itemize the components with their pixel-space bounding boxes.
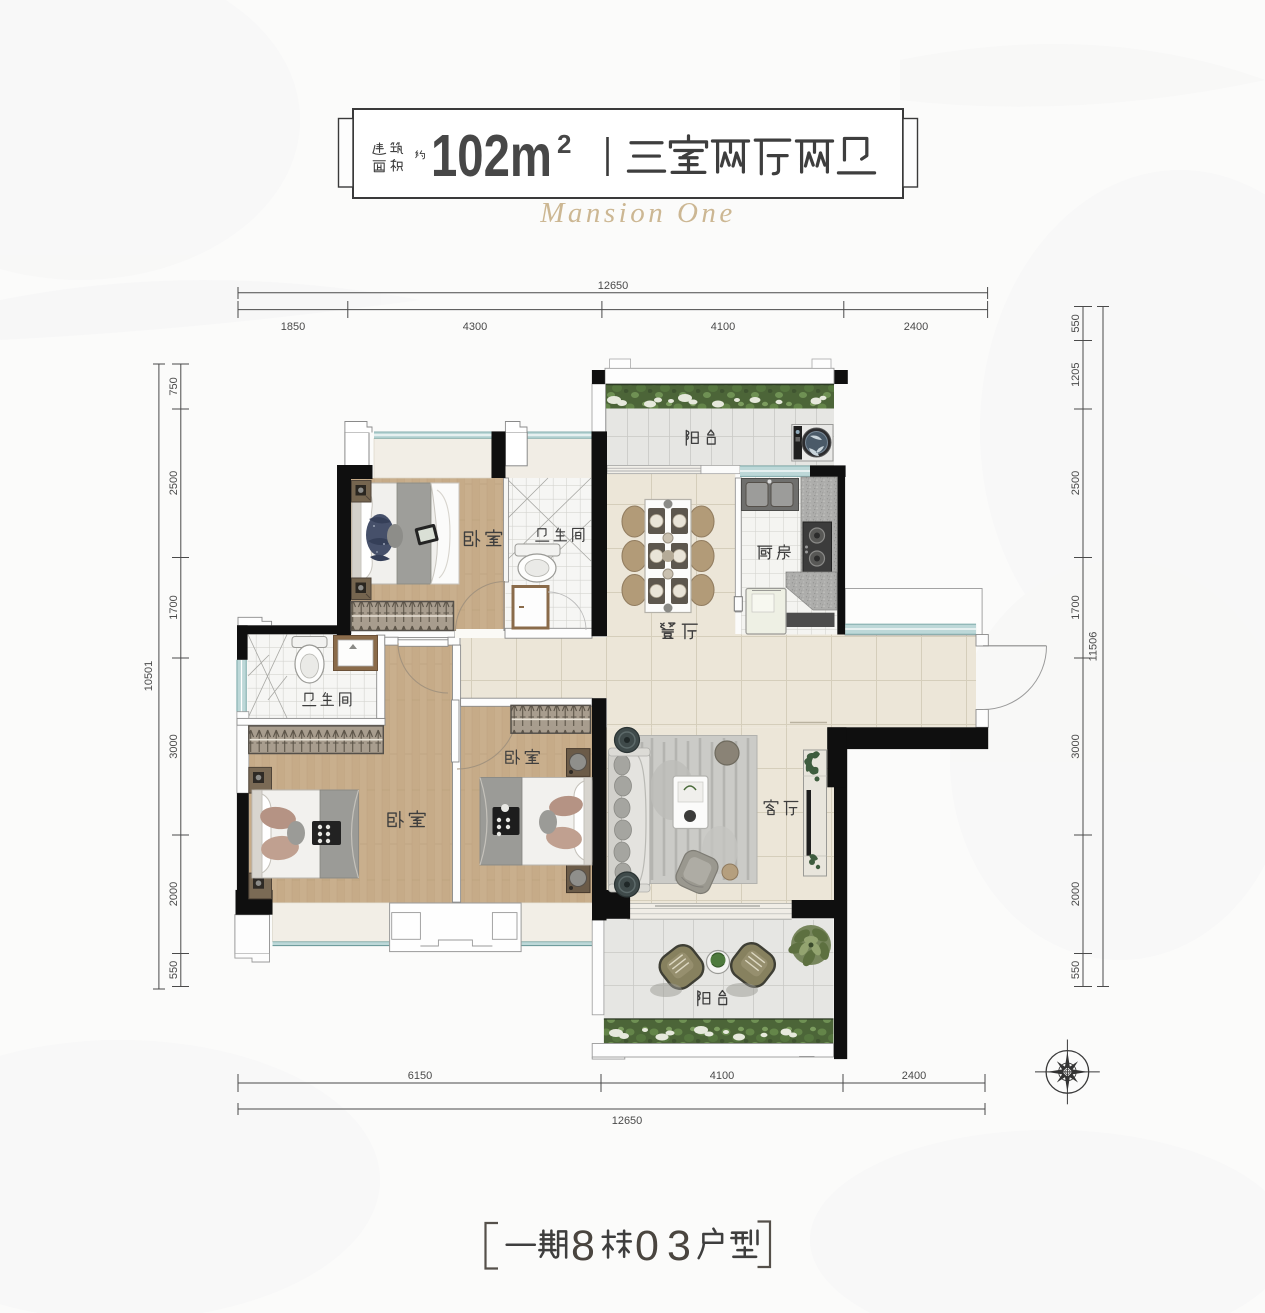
svg-text:3: 3 [667, 1222, 691, 1270]
svg-text:11506: 11506 [1088, 632, 1100, 662]
svg-text:6150: 6150 [408, 1070, 432, 1082]
svg-text:3000: 3000 [168, 734, 180, 758]
svg-text:1700: 1700 [168, 595, 180, 619]
svg-text:2000: 2000 [1070, 882, 1082, 906]
svg-text:12650: 12650 [598, 280, 629, 292]
svg-text:4100: 4100 [711, 321, 735, 333]
svg-text:1850: 1850 [281, 321, 305, 333]
svg-text:3000: 3000 [1070, 734, 1082, 758]
svg-text:8: 8 [571, 1222, 595, 1270]
svg-text:10501: 10501 [143, 661, 155, 692]
svg-text:1700: 1700 [1070, 595, 1082, 619]
svg-text:550: 550 [1070, 961, 1082, 979]
svg-text:2400: 2400 [902, 1070, 926, 1082]
svg-text:4300: 4300 [463, 321, 487, 333]
svg-text:550: 550 [168, 961, 180, 979]
svg-text:Mansion One: Mansion One [539, 197, 736, 229]
svg-text:2500: 2500 [168, 471, 180, 495]
svg-text:12650: 12650 [612, 1115, 643, 1127]
svg-text:2500: 2500 [1070, 471, 1082, 495]
svg-text:2400: 2400 [904, 321, 928, 333]
svg-text:750: 750 [168, 377, 180, 395]
svg-text:4100: 4100 [710, 1070, 734, 1082]
svg-text:102m: 102m [431, 123, 552, 189]
svg-text:2000: 2000 [168, 882, 180, 906]
svg-text:550: 550 [1070, 314, 1082, 332]
svg-text:2: 2 [557, 129, 571, 159]
svg-text:1205: 1205 [1070, 362, 1082, 386]
svg-text:0: 0 [635, 1222, 659, 1270]
